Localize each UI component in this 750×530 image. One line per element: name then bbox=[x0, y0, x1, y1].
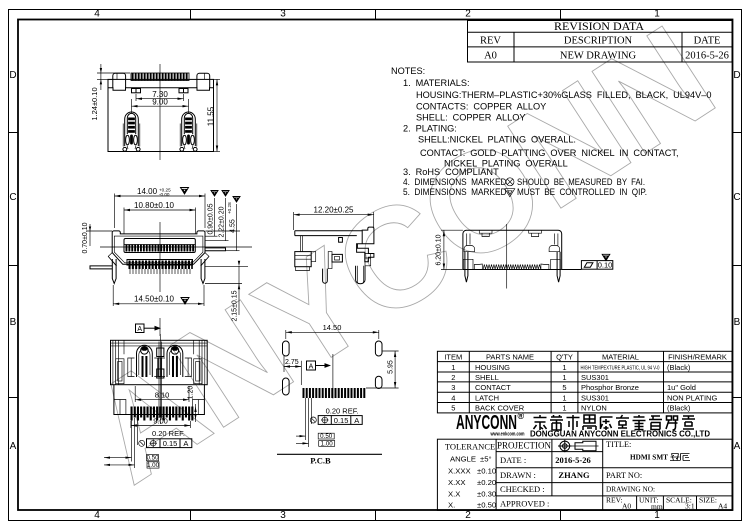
svg-text:X.XX: X.XX bbox=[448, 478, 466, 487]
svg-text:2: 2 bbox=[465, 9, 471, 20]
svg-text:3:1: 3:1 bbox=[685, 502, 695, 511]
svg-text:2.15±0.15: 2.15±0.15 bbox=[232, 290, 239, 321]
svg-text:B: B bbox=[734, 317, 741, 328]
svg-text:X.: X. bbox=[448, 501, 455, 510]
svg-text:1.00: 1.00 bbox=[321, 440, 334, 447]
svg-text:±0.20: ±0.20 bbox=[477, 478, 496, 487]
svg-text:X.XXX: X.XXX bbox=[448, 467, 471, 476]
svg-text:LATCH: LATCH bbox=[475, 393, 499, 402]
svg-text:MUST BE CONTROLLED IN QIP.: MUST BE CONTROLLED IN QIP. bbox=[517, 187, 647, 197]
svg-text:CONTACT: GOLD PLATTING OVER: CONTACT: GOLD PLATTING OVER NICKEL IN CO… bbox=[420, 148, 679, 158]
svg-text:5.95: 5.95 bbox=[388, 360, 395, 374]
svg-text:±0.50: ±0.50 bbox=[477, 501, 496, 510]
svg-text:PART NO:: PART NO: bbox=[606, 471, 642, 480]
svg-text:SHELL: COPPER ALLOY: SHELL: COPPER ALLOY bbox=[416, 113, 525, 123]
svg-text:4: 4 bbox=[94, 9, 100, 20]
svg-text:MATERIAL: MATERIAL bbox=[602, 352, 639, 361]
svg-text:mm: mm bbox=[651, 502, 663, 511]
svg-text:SUS301: SUS301 bbox=[581, 373, 609, 382]
svg-text:SHELL:NICKEL PLATING OVERALL: SHELL:NICKEL PLATING OVERALL. bbox=[418, 135, 576, 145]
svg-text:0.50: 0.50 bbox=[146, 455, 159, 462]
svg-text:1.00: 1.00 bbox=[147, 462, 160, 469]
svg-text:Phosphor Bronze: Phosphor Bronze bbox=[581, 383, 639, 392]
svg-text:HOUSING: HOUSING bbox=[475, 363, 510, 372]
svg-text:±0.10: ±0.10 bbox=[477, 467, 496, 476]
svg-text:P.C.B: P.C.B bbox=[310, 456, 331, 466]
svg-text:4. DIMENSIONS MARKED: 4. DIMENSIONS MARKED bbox=[403, 177, 507, 187]
svg-text:2. PLATING:: 2. PLATING: bbox=[403, 123, 457, 133]
svg-text:3: 3 bbox=[280, 9, 286, 20]
svg-text:3. RoHS COMPLIANT: 3. RoHS COMPLIANT bbox=[403, 167, 499, 177]
svg-text:C: C bbox=[733, 192, 740, 203]
svg-text:1: 1 bbox=[451, 363, 455, 372]
svg-text:NON PLATING: NON PLATING bbox=[667, 393, 717, 402]
svg-text:2.75: 2.75 bbox=[285, 359, 299, 366]
svg-text:9.00: 9.00 bbox=[152, 97, 168, 106]
svg-text:(Black): (Black) bbox=[667, 363, 691, 372]
svg-text:X.X: X.X bbox=[448, 490, 460, 499]
svg-text:PARTS NAME: PARTS NAME bbox=[486, 352, 534, 361]
svg-text:3: 3 bbox=[451, 383, 455, 392]
svg-text:1: 1 bbox=[562, 393, 566, 402]
svg-text:D: D bbox=[9, 70, 16, 81]
svg-text:1u" Gold: 1u" Gold bbox=[667, 383, 696, 392]
svg-text:DRAWN :: DRAWN : bbox=[500, 470, 536, 480]
svg-text:CONTACT: CONTACT bbox=[475, 383, 511, 392]
svg-text:3: 3 bbox=[280, 510, 286, 521]
svg-text:5: 5 bbox=[451, 404, 455, 413]
svg-text:0.90±0.05: 0.90±0.05 bbox=[208, 203, 215, 234]
svg-text:CONTACTS: COPPER ALLOY: CONTACTS: COPPER ALLOY bbox=[416, 102, 546, 112]
svg-text:±0.30: ±0.30 bbox=[477, 490, 496, 499]
svg-text:TOLERANCE: TOLERANCE bbox=[445, 442, 495, 452]
svg-text:NEW DRAWING: NEW DRAWING bbox=[560, 51, 637, 62]
svg-text:6.20±0.10: 6.20±0.10 bbox=[436, 234, 443, 265]
svg-text:D: D bbox=[733, 70, 740, 81]
svg-text:1. MATERIALS:: 1. MATERIALS: bbox=[403, 78, 470, 88]
svg-text:HOUSING:THERM–PLASTIC+30%GLASS: HOUSING:THERM–PLASTIC+30%GLASS FILLED, B… bbox=[416, 90, 711, 100]
svg-text:DONGGUAN ANYCONN ELECTRONICS: DONGGUAN ANYCONN ELECTRONICS CO.,LTD bbox=[530, 429, 710, 438]
svg-text:A: A bbox=[309, 363, 314, 370]
svg-text:TITLE:: TITLE: bbox=[606, 440, 631, 449]
svg-text:SHELL: SHELL bbox=[475, 373, 499, 382]
svg-text:Q'TY: Q'TY bbox=[556, 352, 573, 361]
svg-text:A0: A0 bbox=[484, 51, 497, 62]
svg-text:0.20 REF.: 0.20 REF. bbox=[152, 429, 185, 438]
svg-text:11.55: 11.55 bbox=[207, 106, 216, 126]
svg-text:REV:: REV: bbox=[606, 496, 623, 505]
svg-text:2: 2 bbox=[465, 510, 471, 521]
svg-text:0.15: 0.15 bbox=[163, 439, 178, 448]
svg-text:SUS301: SUS301 bbox=[581, 393, 609, 402]
svg-text:PROJECTION: PROJECTION bbox=[497, 441, 552, 451]
svg-text:5: 5 bbox=[562, 383, 566, 392]
svg-text:14.00: 14.00 bbox=[137, 187, 158, 196]
svg-text:A: A bbox=[734, 441, 741, 452]
svg-text:NOTES:: NOTES: bbox=[391, 66, 425, 76]
svg-text:DRAWING NO:: DRAWING NO: bbox=[606, 485, 655, 494]
svg-text:1: 1 bbox=[654, 9, 660, 20]
svg-text:®: ® bbox=[518, 411, 525, 421]
svg-text:0.20 REF.: 0.20 REF. bbox=[326, 407, 359, 416]
svg-text:0.50: 0.50 bbox=[320, 433, 333, 440]
svg-text:DATE :: DATE : bbox=[500, 455, 526, 465]
svg-text:B: B bbox=[10, 317, 17, 328]
svg-text:1.20: 1.20 bbox=[188, 386, 195, 400]
svg-text:1.24±0.10: 1.24±0.10 bbox=[90, 87, 99, 120]
svg-text:NYLON: NYLON bbox=[581, 404, 607, 413]
svg-text:4: 4 bbox=[451, 393, 455, 402]
svg-text:1: 1 bbox=[562, 404, 566, 413]
svg-text:4.55: 4.55 bbox=[230, 219, 237, 233]
svg-text:0.15: 0.15 bbox=[334, 416, 349, 425]
svg-text:REV: REV bbox=[480, 36, 501, 47]
svg-text:www.enkcom.com: www.enkcom.com bbox=[490, 431, 525, 437]
svg-text:2016-5-26: 2016-5-26 bbox=[685, 51, 729, 62]
svg-text:CHECKED :: CHECKED : bbox=[500, 484, 545, 494]
svg-text:DATE: DATE bbox=[694, 36, 721, 47]
svg-text:2.22±0.20: 2.22±0.20 bbox=[219, 206, 226, 237]
svg-text:2: 2 bbox=[451, 373, 455, 382]
svg-text:2016-5-26: 2016-5-26 bbox=[555, 455, 590, 465]
svg-text:0.70±0.10: 0.70±0.10 bbox=[82, 222, 89, 253]
svg-text:DESCRIPTION: DESCRIPTION bbox=[564, 36, 633, 47]
svg-text:1: 1 bbox=[654, 510, 660, 521]
svg-text:1: 1 bbox=[562, 373, 566, 382]
svg-text:SIZE:: SIZE: bbox=[699, 496, 717, 505]
svg-text:ANGLE: ANGLE bbox=[450, 455, 476, 464]
svg-text:A0: A0 bbox=[622, 502, 631, 511]
svg-text:ZHANG: ZHANG bbox=[558, 470, 590, 480]
svg-text:ITEM: ITEM bbox=[444, 352, 462, 361]
svg-text:HDMI SMT: HDMI SMT bbox=[630, 453, 668, 462]
svg-text:14.50±0.10: 14.50±0.10 bbox=[134, 295, 175, 304]
svg-text:SHOULD BE MEASURED BY FAI.: SHOULD BE MEASURED BY FAI. bbox=[517, 177, 645, 187]
svg-text:-0.00: -0.00 bbox=[159, 192, 170, 197]
svg-text:+0.28: +0.28 bbox=[227, 202, 232, 214]
svg-text:A: A bbox=[354, 416, 359, 425]
svg-text:8.10: 8.10 bbox=[155, 391, 170, 400]
svg-text:A: A bbox=[183, 439, 188, 448]
svg-text:REVISION DATA: REVISION DATA bbox=[554, 19, 644, 33]
svg-text:9.00: 9.00 bbox=[153, 417, 168, 426]
svg-text:A: A bbox=[137, 326, 142, 333]
svg-text:A: A bbox=[10, 441, 17, 452]
svg-text:(Black): (Black) bbox=[667, 404, 691, 413]
svg-text:4: 4 bbox=[94, 510, 100, 521]
svg-text:0.10: 0.10 bbox=[598, 261, 613, 270]
svg-text:HIGH TEMPEXTURE PLASTIC, UL 94: HIGH TEMPEXTURE PLASTIC, UL 94 V-0 bbox=[581, 365, 660, 371]
svg-text:5. DIMENSIONS MARKED: 5. DIMENSIONS MARKED bbox=[403, 187, 507, 197]
svg-text:±5°: ±5° bbox=[480, 455, 492, 464]
svg-text:10.80±0.10: 10.80±0.10 bbox=[134, 201, 175, 210]
svg-text:A4: A4 bbox=[718, 502, 727, 511]
svg-text:1: 1 bbox=[562, 363, 566, 372]
svg-text:C: C bbox=[9, 192, 16, 203]
svg-text:APPROVED :: APPROVED : bbox=[500, 499, 549, 509]
svg-text:12.20±0.25: 12.20±0.25 bbox=[314, 206, 355, 215]
svg-text:14.50: 14.50 bbox=[323, 323, 342, 332]
svg-text:FINISH/REMARK: FINISH/REMARK bbox=[668, 352, 727, 361]
